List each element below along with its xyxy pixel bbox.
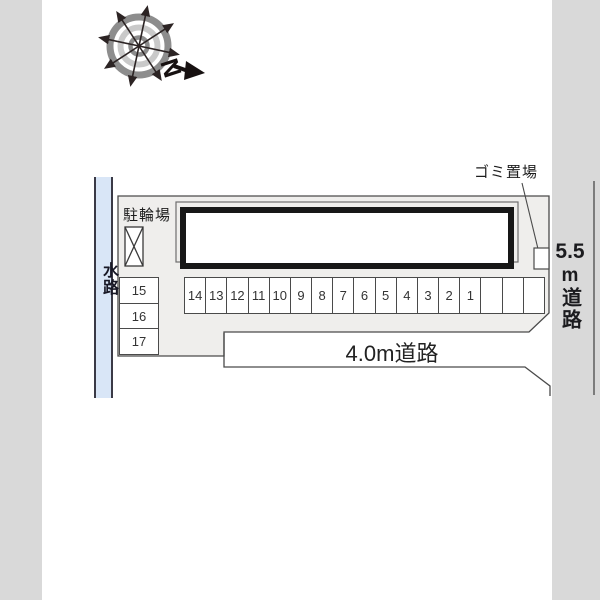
parking-space-16: 16 [120,303,158,329]
parking-space-10: 10 [269,278,290,313]
building-footprint [180,207,514,269]
compass-rose: N [103,10,205,82]
parking-space-6: 6 [353,278,374,313]
parking-space-9: 9 [290,278,311,313]
parking-row: 14 13 12 11 10 9 8 7 6 5 4 3 2 1 [184,277,545,314]
parking-space-13: 13 [205,278,226,313]
parking-space-7: 7 [332,278,353,313]
road-right-word: 道路 [556,287,585,331]
parking-space-14: 14 [185,278,205,313]
parking-space-11: 11 [248,278,269,313]
road-bottom-label: 4.0m道路 [312,336,472,368]
parking-space-4: 4 [396,278,417,313]
parking-space-empty-2 [502,278,523,313]
parking-space-8: 8 [311,278,332,313]
page-background: N 14 13 12 11 10 9 8 7 6 5 4 3 2 1 [0,0,600,600]
road-right-unit: m [562,266,579,285]
parking-space-17: 17 [120,328,158,354]
parking-space-empty-3 [523,278,544,313]
garbage-box [534,248,549,269]
bicycle-parking-box [125,227,143,266]
garbage-area-label: ゴミ置場 [474,161,538,182]
road-right-width-value: 5.5 [555,240,584,264]
parking-space-3: 3 [417,278,438,313]
bicycle-parking-label: 駐輪場 [123,204,171,225]
site-plan-image: N 14 13 12 11 10 9 8 7 6 5 4 3 2 1 [42,0,552,600]
road-right-label: 5.5 m 道路 [548,240,592,331]
parking-space-2: 2 [438,278,459,313]
parking-space-12: 12 [226,278,247,313]
waterway-label: 水路 [91,262,117,296]
parking-space-5: 5 [375,278,396,313]
parking-space-empty-1 [480,278,501,313]
parking-space-15: 15 [120,278,158,303]
parking-space-1: 1 [459,278,480,313]
parking-column: 15 16 17 [119,277,159,355]
